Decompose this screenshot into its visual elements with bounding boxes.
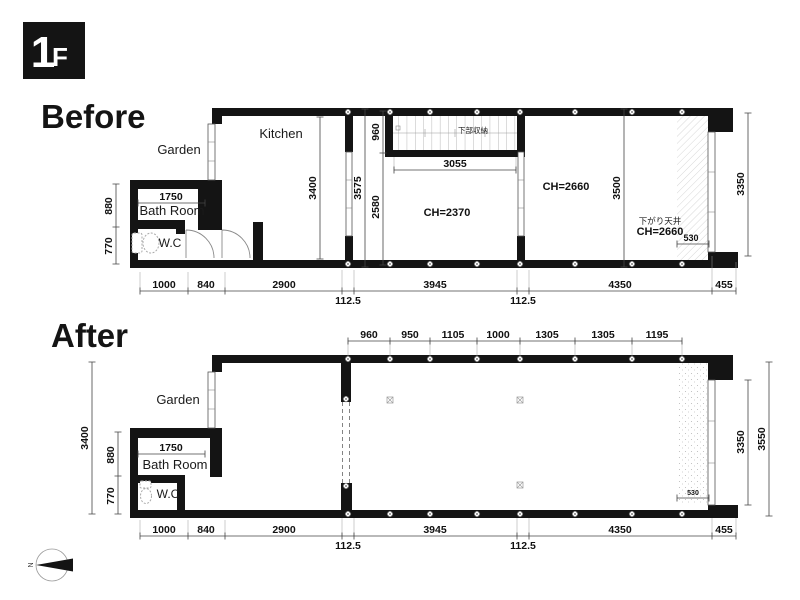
after-dim-bath-width: 1750	[159, 442, 183, 454]
before-dim-offset-1: 112.5	[335, 295, 361, 307]
after-lowered-ceiling-strip	[677, 363, 708, 505]
before-stair-storage-label: 下部収納	[458, 125, 488, 135]
after-title: After	[51, 317, 128, 354]
after-post-markers	[387, 397, 523, 488]
after-bathroom-label: Bath Room	[142, 457, 207, 472]
after-garden-label: Garden	[156, 392, 199, 407]
after-dim-window-height: 3350	[735, 430, 747, 454]
after-dim-bottom-2: 840	[197, 524, 215, 536]
before-dim-bottom-4: 3945	[423, 279, 447, 291]
after-dim-lowered-width: 530	[687, 490, 699, 497]
before-dim-left-lower: 770	[103, 237, 115, 255]
after-dim-offset-2: 112.5	[510, 540, 536, 552]
after-plan: Garden Bath Room W.C 960 950 1105 1000 1…	[79, 329, 773, 552]
after-dim-right-total: 3550	[756, 427, 768, 451]
before-dim-offset-2: 112.5	[510, 295, 536, 307]
before-dim-bath-width: 1750	[159, 191, 183, 203]
before-dim-bottom-1: 1000	[152, 279, 176, 291]
before-bathroom-label: Bath Room	[139, 203, 204, 218]
after-wc-label: W.C	[157, 487, 180, 501]
before-dim-window-height: 3350	[735, 172, 747, 196]
before-lowered-ceiling-label: 下がり天井	[639, 216, 682, 226]
after-walls	[130, 355, 738, 518]
after-removed-wall-dashes	[343, 402, 350, 483]
before-ch-right: CH=2660	[543, 181, 590, 193]
before-plan: Garden Kitchen Bath Room W.C 下部収納 CH=237…	[103, 108, 752, 307]
after-dim-bottom-6: 455	[715, 524, 733, 536]
before-lowered-ch: CH=2660	[637, 226, 684, 238]
after-dim-top-3: 1105	[442, 329, 465, 341]
after-dim-top-5: 1305	[535, 329, 559, 341]
before-garden-label: Garden	[157, 142, 200, 157]
after-windows	[208, 372, 715, 505]
after-dim-top-2: 950	[401, 329, 419, 341]
after-dim-left-upper: 880	[105, 446, 117, 464]
after-dim-left-total: 3400	[79, 426, 91, 450]
after-dim-bottom-4: 3945	[423, 524, 447, 536]
after-dim-top-1: 960	[360, 329, 378, 341]
after-dim-top-6: 1305	[591, 329, 615, 341]
floor-badge-letter: F	[52, 42, 68, 72]
before-ch-middle: CH=2370	[424, 207, 471, 219]
before-dim-bottom-2: 840	[197, 279, 215, 291]
after-toilet-icon	[140, 481, 152, 504]
after-dim-left-lower: 770	[105, 487, 117, 505]
compass-north-label: N	[28, 562, 35, 567]
before-dim-kitchen-height: 3400	[307, 176, 319, 200]
before-dim-stair-width: 3055	[443, 158, 467, 170]
before-dim-left-upper: 880	[103, 197, 115, 215]
after-dim-top-4: 1000	[486, 329, 510, 341]
before-dim-total-height: 3575	[352, 176, 364, 200]
after-wall-markers	[343, 356, 685, 517]
before-toilet-icon	[132, 233, 159, 253]
floor-badge: 1 F	[23, 22, 85, 79]
before-dim-lowered-width: 530	[683, 233, 698, 243]
before-dim-bottom-6: 455	[715, 279, 733, 291]
before-dim-below-stair: 2580	[370, 195, 382, 219]
before-dim-stair-depth: 960	[370, 123, 382, 141]
floor-plan-drawing: 1 F Before After	[0, 0, 800, 600]
before-dim-right-height: 3500	[611, 176, 623, 200]
before-stairs	[393, 116, 517, 150]
after-dim-bottom-3: 2900	[272, 524, 296, 536]
before-dim-bottom-3: 2900	[272, 279, 296, 291]
before-wc-label: W.C	[159, 236, 182, 250]
before-dim-bottom-5: 4350	[608, 279, 632, 291]
before-title: Before	[41, 98, 146, 135]
after-dim-bottom-5: 4350	[608, 524, 632, 536]
before-kitchen-label: Kitchen	[259, 126, 302, 141]
before-entry-doors	[186, 230, 250, 258]
north-compass-icon: N	[28, 549, 73, 581]
after-dim-bottom-1: 1000	[152, 524, 176, 536]
after-dim-top-7: 1195	[646, 329, 669, 341]
after-dim-offset-1: 112.5	[335, 540, 361, 552]
